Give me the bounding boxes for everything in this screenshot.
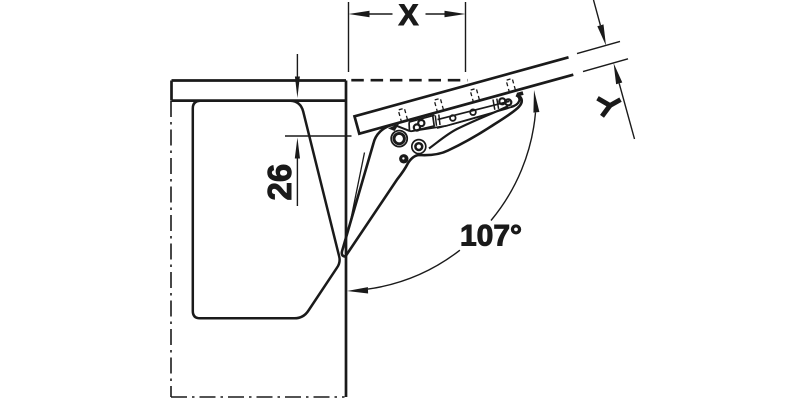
svg-text:X: X bbox=[399, 0, 419, 32]
svg-text:26: 26 bbox=[261, 164, 298, 201]
svg-text:107°: 107° bbox=[460, 220, 522, 253]
